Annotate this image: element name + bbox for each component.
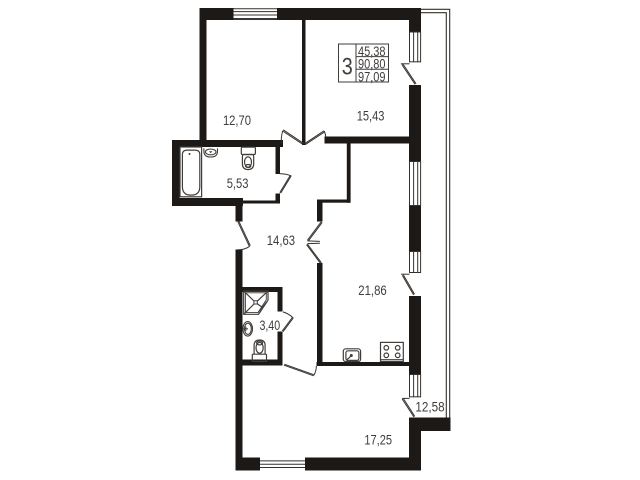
svg-text:3,40: 3,40: [259, 318, 280, 333]
svg-text:12,70: 12,70: [223, 113, 251, 128]
svg-text:5,53: 5,53: [227, 176, 249, 191]
svg-text:3: 3: [342, 53, 353, 80]
svg-text:15,43: 15,43: [357, 108, 385, 123]
svg-text:97,09: 97,09: [358, 69, 386, 84]
svg-text:21,86: 21,86: [358, 283, 387, 298]
svg-text:17,25: 17,25: [364, 433, 392, 448]
svg-text:14,63: 14,63: [267, 233, 295, 248]
svg-text:12,58: 12,58: [415, 399, 444, 414]
